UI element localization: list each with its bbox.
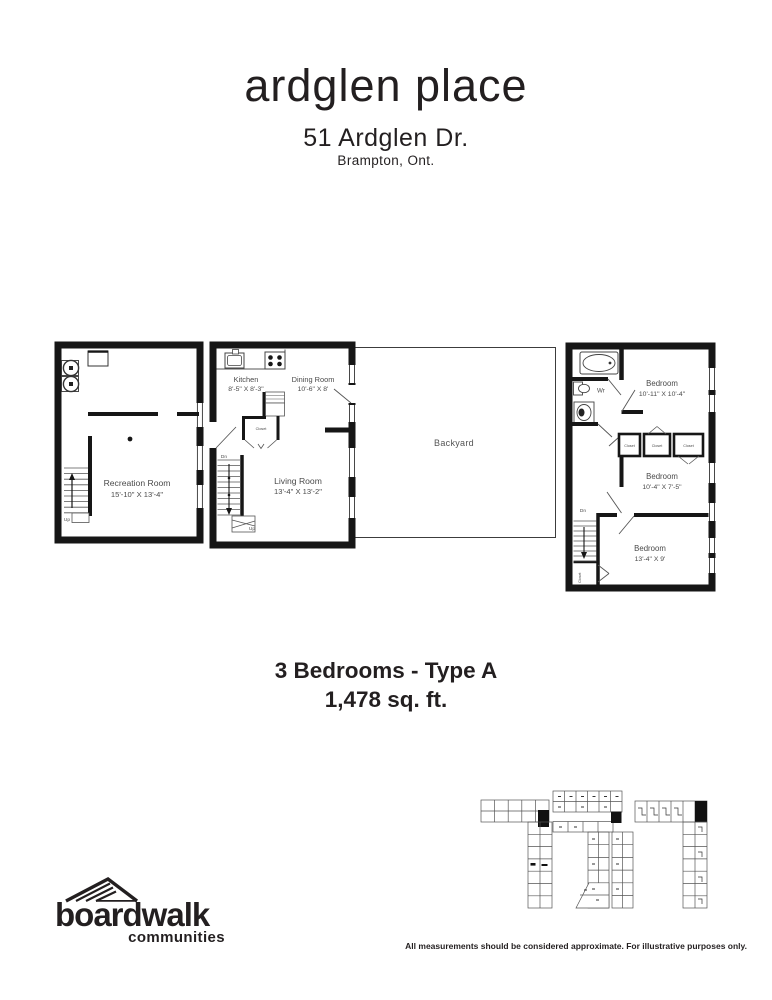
- pantry-unit: [264, 392, 285, 416]
- furnace-symbol: [88, 351, 108, 366]
- backyard-label: Backyard: [434, 438, 474, 448]
- property-title: ardglen place: [0, 60, 772, 112]
- closet2-label: Closet: [652, 444, 662, 448]
- room-dims-dining: 10'-6" X 8': [298, 386, 329, 393]
- room-label-kitchen: Kitchen: [234, 375, 259, 384]
- basement-windows: [196, 403, 204, 508]
- room-dims-bedroom3: 13'-4" X 9': [635, 556, 666, 563]
- room-dims-bedroom1: 10'-11" X 10'-4": [639, 391, 686, 398]
- stairs-dn-label: Dn: [221, 454, 227, 460]
- closet3-label: Closet: [683, 444, 693, 448]
- highlighted-unit: [695, 801, 707, 822]
- boardwalk-logo: boardwalk communities: [55, 872, 233, 950]
- stairs-up-label: Up: [249, 526, 255, 532]
- room-dims-bedroom2: 10'-4" X 7'-5": [642, 484, 682, 491]
- closet-label: Closet: [256, 427, 268, 431]
- logo-tagline: communities: [55, 930, 225, 945]
- main-floorplan: Closet Dn Up Kitchen 8'-5" X 8'-3" Dinin…: [208, 340, 358, 550]
- room-dims-living: 13'-4" X 13'-2": [274, 487, 322, 496]
- room-dims-kitchen: 8'-5" X 8'-3": [228, 386, 264, 393]
- upper-windows: [708, 368, 716, 573]
- disclaimer-text: All measurements should be considered ap…: [405, 941, 747, 951]
- closet-stairs-label: Closet: [578, 573, 582, 583]
- floorplan-flyer-page: ardglen place 51 Ardglen Dr. Brampton, O…: [0, 0, 772, 1000]
- room-label-recreation: Recreation Room: [104, 478, 171, 488]
- site-building-middle: [553, 791, 633, 908]
- closet1-label: Closet: [624, 444, 634, 448]
- site-building-right: [635, 801, 707, 908]
- room-label-dining: Dining Room: [292, 375, 335, 384]
- floor-drain: [128, 437, 133, 442]
- logo-name: boardwalk: [55, 898, 209, 931]
- backyard-outline: Backyard: [352, 347, 556, 538]
- basement-floorplan: Up Recreation Room 15'-10" X 13'-4": [52, 340, 206, 546]
- property-city: Brampton, Ont.: [0, 153, 772, 168]
- stairs-up-label: Up: [64, 517, 70, 523]
- washroom-label: Wr: [597, 388, 605, 395]
- site-key-map: [472, 778, 722, 918]
- room-label-bedroom1: Bedroom: [646, 379, 678, 388]
- unit-area-heading: 1,478 sq. ft.: [0, 687, 772, 713]
- upper-floorplan: Closet Closet Closet Dn Closet Wr Bedroo…: [564, 340, 718, 594]
- room-label-bedroom3: Bedroom: [634, 544, 666, 553]
- unit-type-heading: 3 Bedrooms - Type A: [0, 658, 772, 684]
- property-address: 51 Ardglen Dr.: [0, 124, 772, 153]
- stove-symbol: [265, 352, 285, 369]
- room-dims-recreation: 15'-10" X 13'-4": [111, 490, 164, 499]
- stairs-dn-label: Dn: [580, 508, 586, 514]
- room-label-bedroom2: Bedroom: [646, 472, 678, 481]
- site-building-left: [481, 800, 552, 908]
- room-label-living: Living Room: [274, 476, 322, 486]
- highlighted-unit: [611, 812, 622, 824]
